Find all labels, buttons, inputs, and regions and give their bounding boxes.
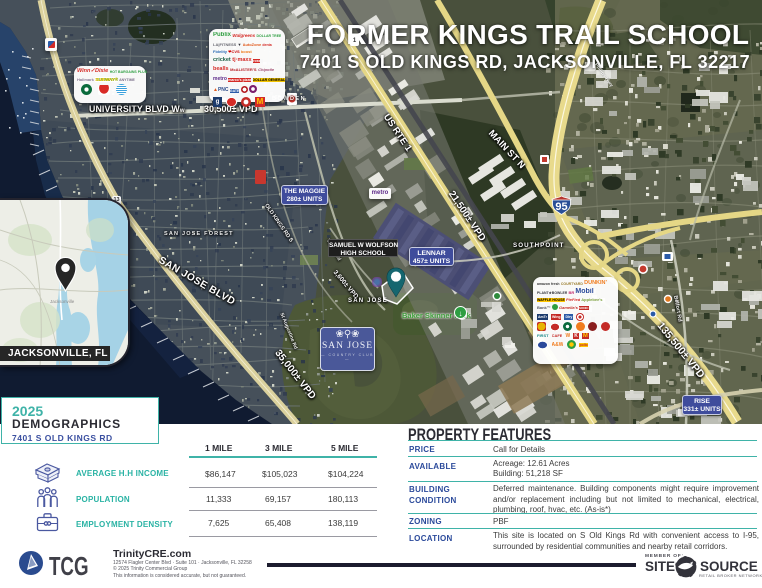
svg-text:Jacksonville: Jacksonville [50,299,75,304]
svg-text:95: 95 [555,201,567,213]
